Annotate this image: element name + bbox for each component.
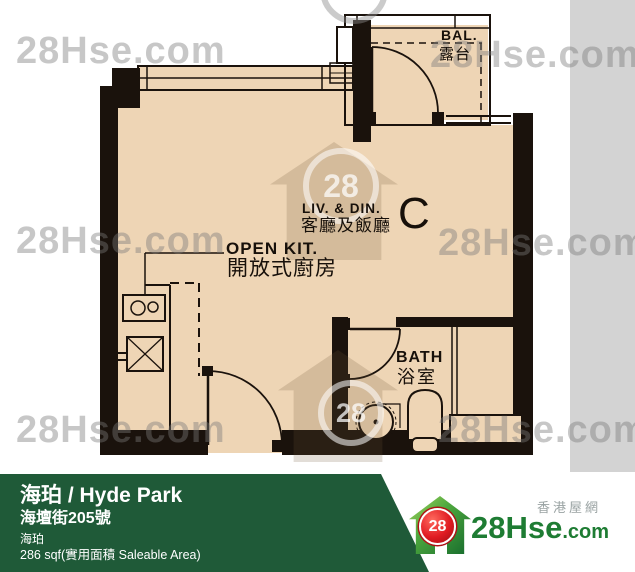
site-logo: 香港屋網 28 28Hse .com [405,488,633,568]
logo-28-badge: 28 [419,508,456,545]
watermark-text: 28Hse.com [16,32,226,70]
property-title: 海珀 / Hyde Park [20,485,182,506]
floorplan-page: 28 28 28Hse.com 28Hse.com 28Hse.com 28Hs… [0,0,635,572]
saleable-area: 286 sqf(實用面積 Saleable Area) [20,549,201,562]
watermark-28-badge: 28 [318,380,384,446]
property-address: 海壇街205號 [20,511,111,527]
watermark-text: 28Hse.com [16,222,226,260]
logo-wordmark: 28Hse .com [471,510,609,546]
logo-brand: 28Hse [471,510,562,546]
watermark-text: 28Hse.com [16,411,226,449]
bathroom-label-zh: 浴室 [397,368,437,386]
unit-letter: C [398,192,430,236]
balcony-label: BAL. [441,28,478,42]
logo-suffix: .com [562,521,609,544]
open-kitchen-label-zh: 開放式廚房 [227,258,337,279]
open-kitchen-label: OPEN KIT. [226,240,318,257]
living-dining-label: LIV. & DIN. [302,202,381,216]
balcony-label-zh: 露台 [439,47,471,62]
estate-name: 海珀 [20,533,44,545]
watermark-text: 28Hse.com [438,224,635,262]
watermark-text: 28Hse.com [438,411,635,449]
living-dining-label-zh: 客廳及飯廳 [301,217,391,234]
bathroom-label: BATH [396,350,443,366]
